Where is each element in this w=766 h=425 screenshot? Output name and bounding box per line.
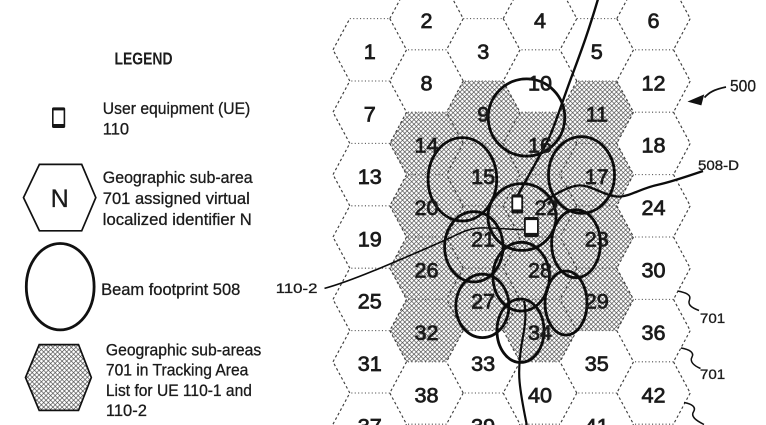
svg-text:701: 701 <box>700 311 725 326</box>
svg-text:11: 11 <box>586 102 608 127</box>
svg-text:38: 38 <box>414 382 438 407</box>
svg-text:34: 34 <box>528 320 552 345</box>
svg-text:1: 1 <box>364 39 376 64</box>
svg-text:18: 18 <box>641 133 665 158</box>
svg-text:701 assigned virtual: 701 assigned virtual <box>103 190 250 208</box>
svg-text:39: 39 <box>471 414 495 425</box>
svg-text:9: 9 <box>477 102 489 127</box>
svg-text:701: 701 <box>700 367 725 382</box>
svg-text:701 in Tracking Area: 701 in Tracking Area <box>106 362 249 380</box>
svg-text:Geographic sub-area: Geographic sub-area <box>103 169 254 187</box>
svg-text:41: 41 <box>585 414 609 425</box>
svg-text:29: 29 <box>585 289 609 314</box>
svg-text:4: 4 <box>534 8 546 33</box>
svg-text:3: 3 <box>477 39 489 64</box>
svg-text:5: 5 <box>591 39 603 64</box>
svg-text:110-2: 110-2 <box>106 402 147 420</box>
svg-text:Geographic sub-areas: Geographic sub-areas <box>106 341 261 359</box>
svg-text:22: 22 <box>534 195 558 220</box>
svg-text:LEGEND: LEGEND <box>115 49 173 69</box>
svg-text:500: 500 <box>730 77 756 96</box>
svg-text:17: 17 <box>585 164 609 189</box>
svg-text:15: 15 <box>471 164 495 189</box>
svg-text:508-D: 508-D <box>698 158 739 173</box>
svg-text:localized identifier N: localized identifier N <box>103 211 252 229</box>
svg-text:User equipment (UE): User equipment (UE) <box>103 100 251 118</box>
svg-text:31: 31 <box>358 351 382 376</box>
svg-text:37: 37 <box>358 414 382 425</box>
svg-text:2: 2 <box>420 8 432 33</box>
svg-text:110-2: 110-2 <box>276 281 318 296</box>
svg-text:List for UE 110-1 and: List for UE 110-1 and <box>106 382 252 400</box>
svg-text:26: 26 <box>414 258 438 283</box>
svg-text:24: 24 <box>641 195 665 220</box>
svg-text:40: 40 <box>528 382 552 407</box>
svg-text:110: 110 <box>103 121 129 139</box>
svg-text:32: 32 <box>414 320 438 345</box>
svg-text:27: 27 <box>471 289 495 314</box>
svg-text:23: 23 <box>585 226 609 251</box>
svg-text:20: 20 <box>414 195 438 220</box>
svg-text:14: 14 <box>414 133 438 158</box>
svg-text:28: 28 <box>528 258 552 283</box>
svg-text:10: 10 <box>528 70 552 95</box>
svg-text:13: 13 <box>358 164 382 189</box>
svg-text:30: 30 <box>641 258 665 283</box>
svg-text:21: 21 <box>471 226 495 251</box>
svg-text:12: 12 <box>641 70 665 95</box>
svg-text:16: 16 <box>528 133 552 158</box>
svg-text:19: 19 <box>358 226 382 251</box>
svg-text:Beam footprint 508: Beam footprint 508 <box>101 281 240 299</box>
svg-text:N: N <box>51 185 69 213</box>
svg-text:7: 7 <box>364 102 376 127</box>
svg-text:36: 36 <box>641 320 665 345</box>
svg-text:42: 42 <box>641 382 665 407</box>
svg-text:6: 6 <box>647 8 659 33</box>
svg-text:8: 8 <box>420 70 432 95</box>
svg-text:35: 35 <box>585 351 609 376</box>
svg-text:25: 25 <box>358 289 382 314</box>
svg-text:33: 33 <box>471 351 495 376</box>
